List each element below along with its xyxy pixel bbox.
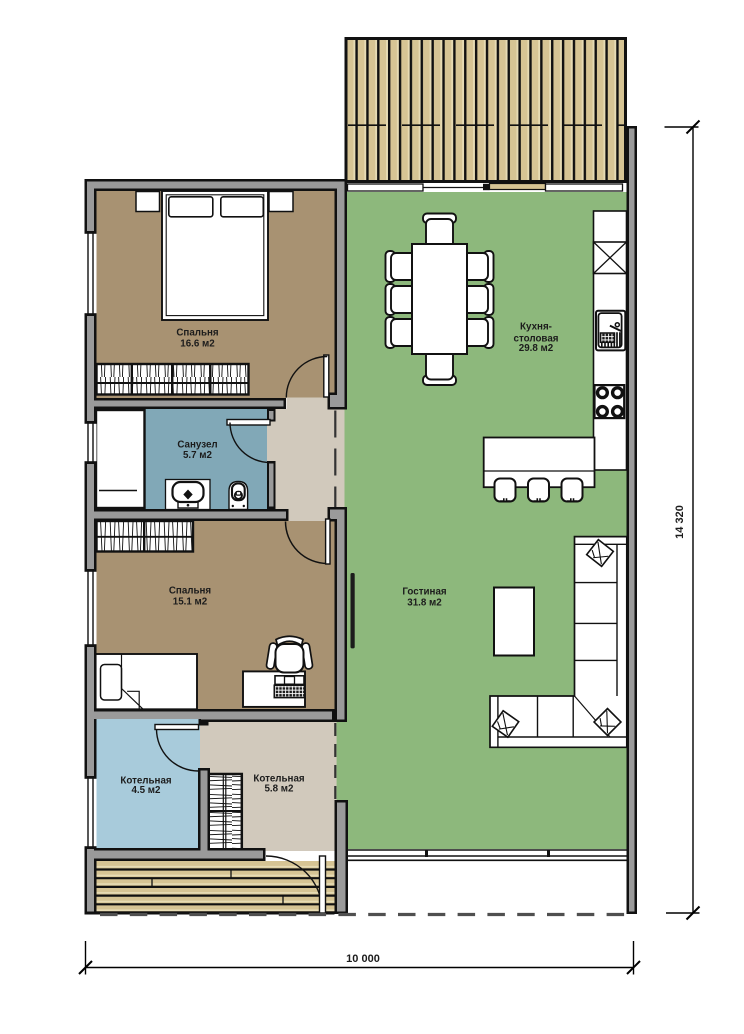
svg-text:4.5 м2: 4.5 м2 [131, 785, 161, 796]
svg-text:15.1 м2: 15.1 м2 [173, 596, 208, 607]
svg-text:5.8 м2: 5.8 м2 [264, 784, 294, 795]
svg-text:29.8 м2: 29.8 м2 [519, 343, 554, 354]
svg-text:14 320: 14 320 [674, 505, 686, 539]
svg-text:Кухня-: Кухня- [520, 321, 552, 332]
svg-text:10 000: 10 000 [346, 953, 380, 965]
svg-text:Гостиная: Гостиная [402, 587, 447, 598]
svg-text:Санузел: Санузел [177, 439, 217, 450]
svg-text:Спальня: Спальня [169, 586, 212, 597]
svg-text:5.7 м2: 5.7 м2 [183, 450, 213, 461]
svg-text:16.6 м2: 16.6 м2 [180, 339, 215, 350]
svg-text:Спальня: Спальня [176, 328, 219, 339]
svg-text:31.8 м2: 31.8 м2 [407, 597, 442, 608]
